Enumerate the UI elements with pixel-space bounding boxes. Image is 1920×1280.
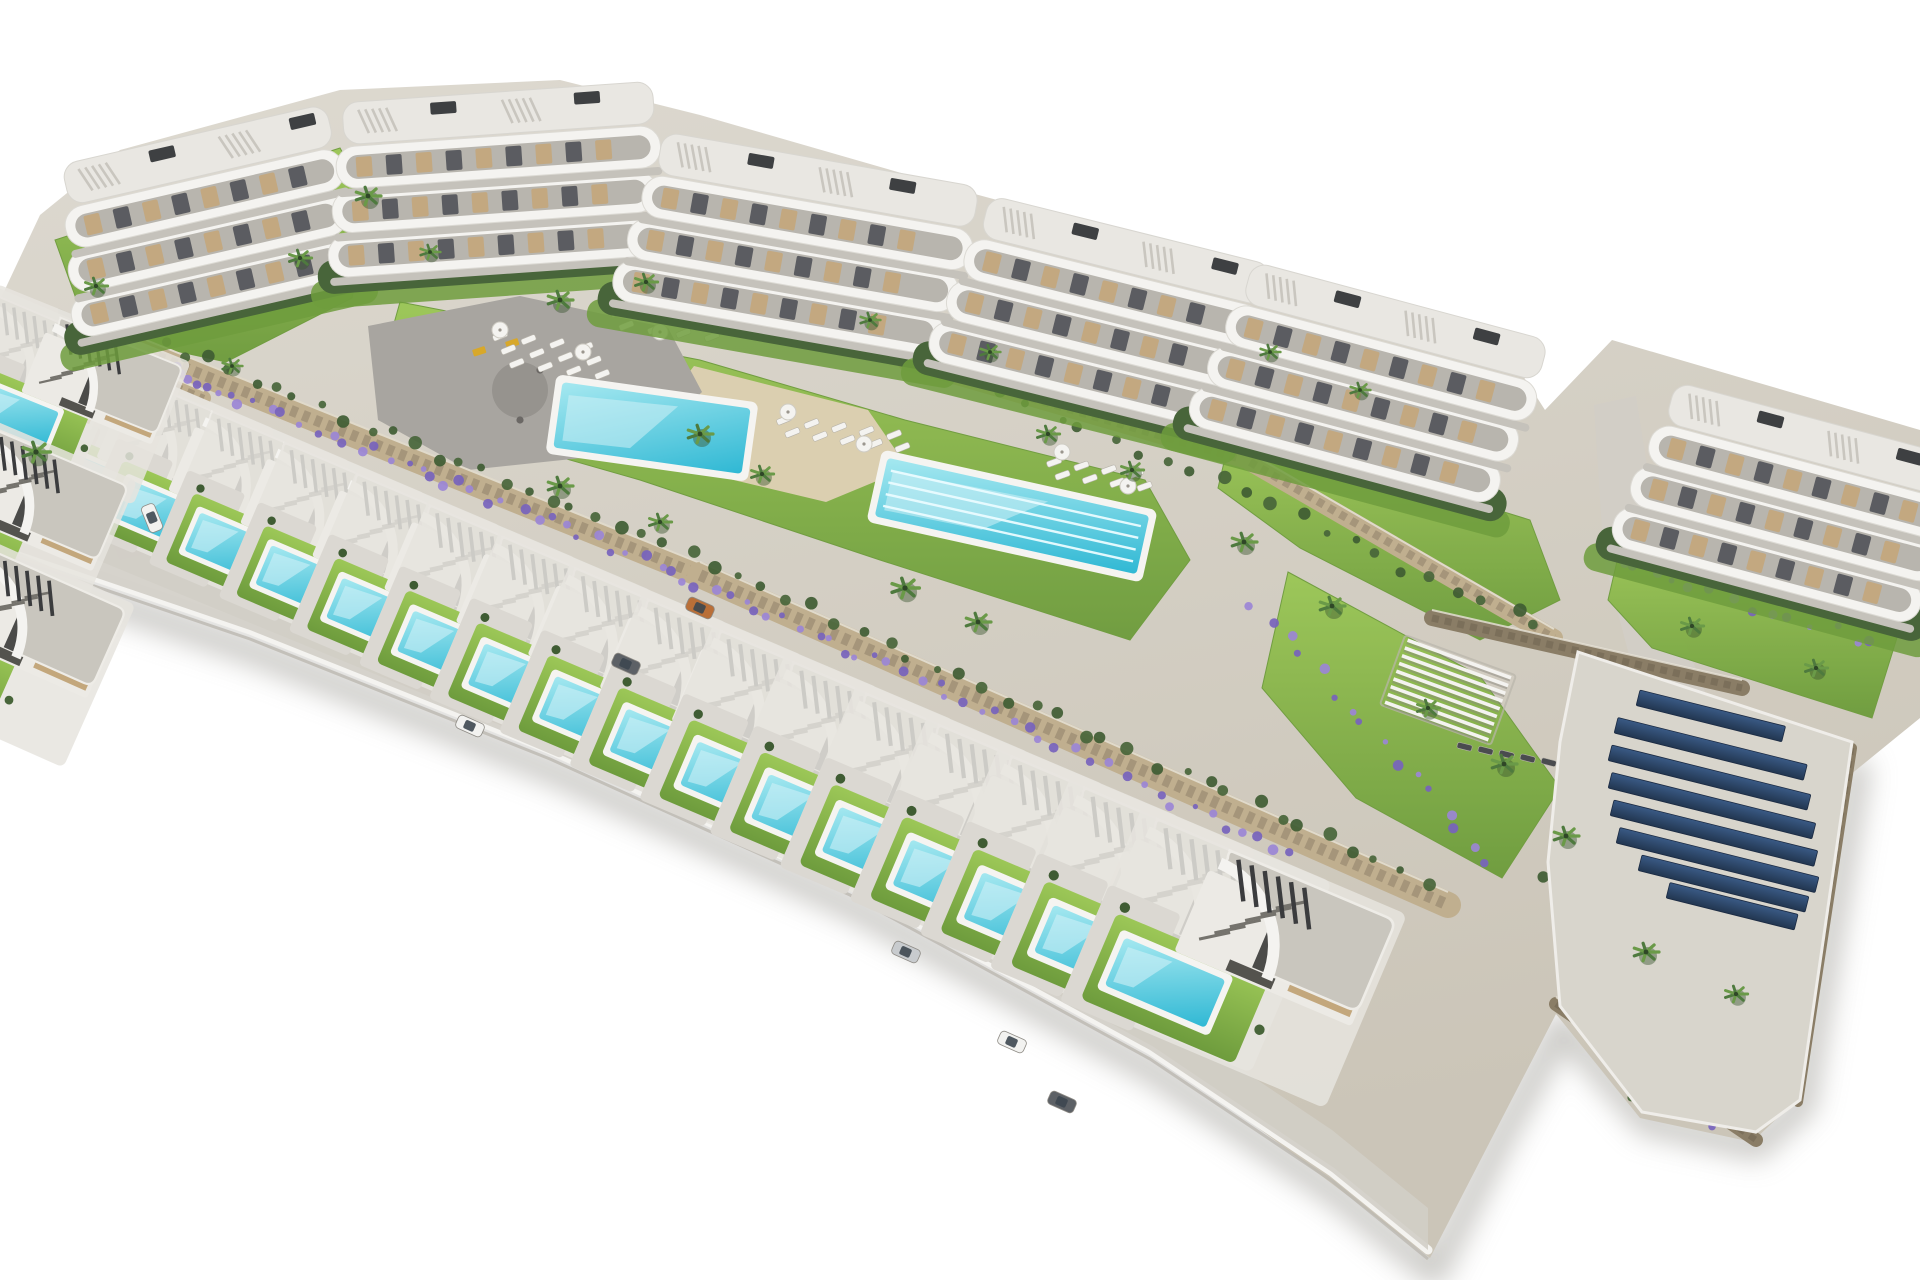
render-stage: Aerial 3D architectural render of a hill… <box>0 0 1920 1280</box>
aerial-site-render: Aerial 3D architectural render of a hill… <box>0 0 1920 1280</box>
parasol <box>1054 444 1070 460</box>
parasol <box>492 322 508 338</box>
parasol <box>780 404 796 420</box>
parasol <box>575 344 591 360</box>
car <box>996 1030 1027 1054</box>
parasol <box>856 436 872 452</box>
rooftop-ac-unit <box>574 91 601 105</box>
rooftop-ac-unit <box>430 101 457 115</box>
car <box>1046 1090 1077 1114</box>
